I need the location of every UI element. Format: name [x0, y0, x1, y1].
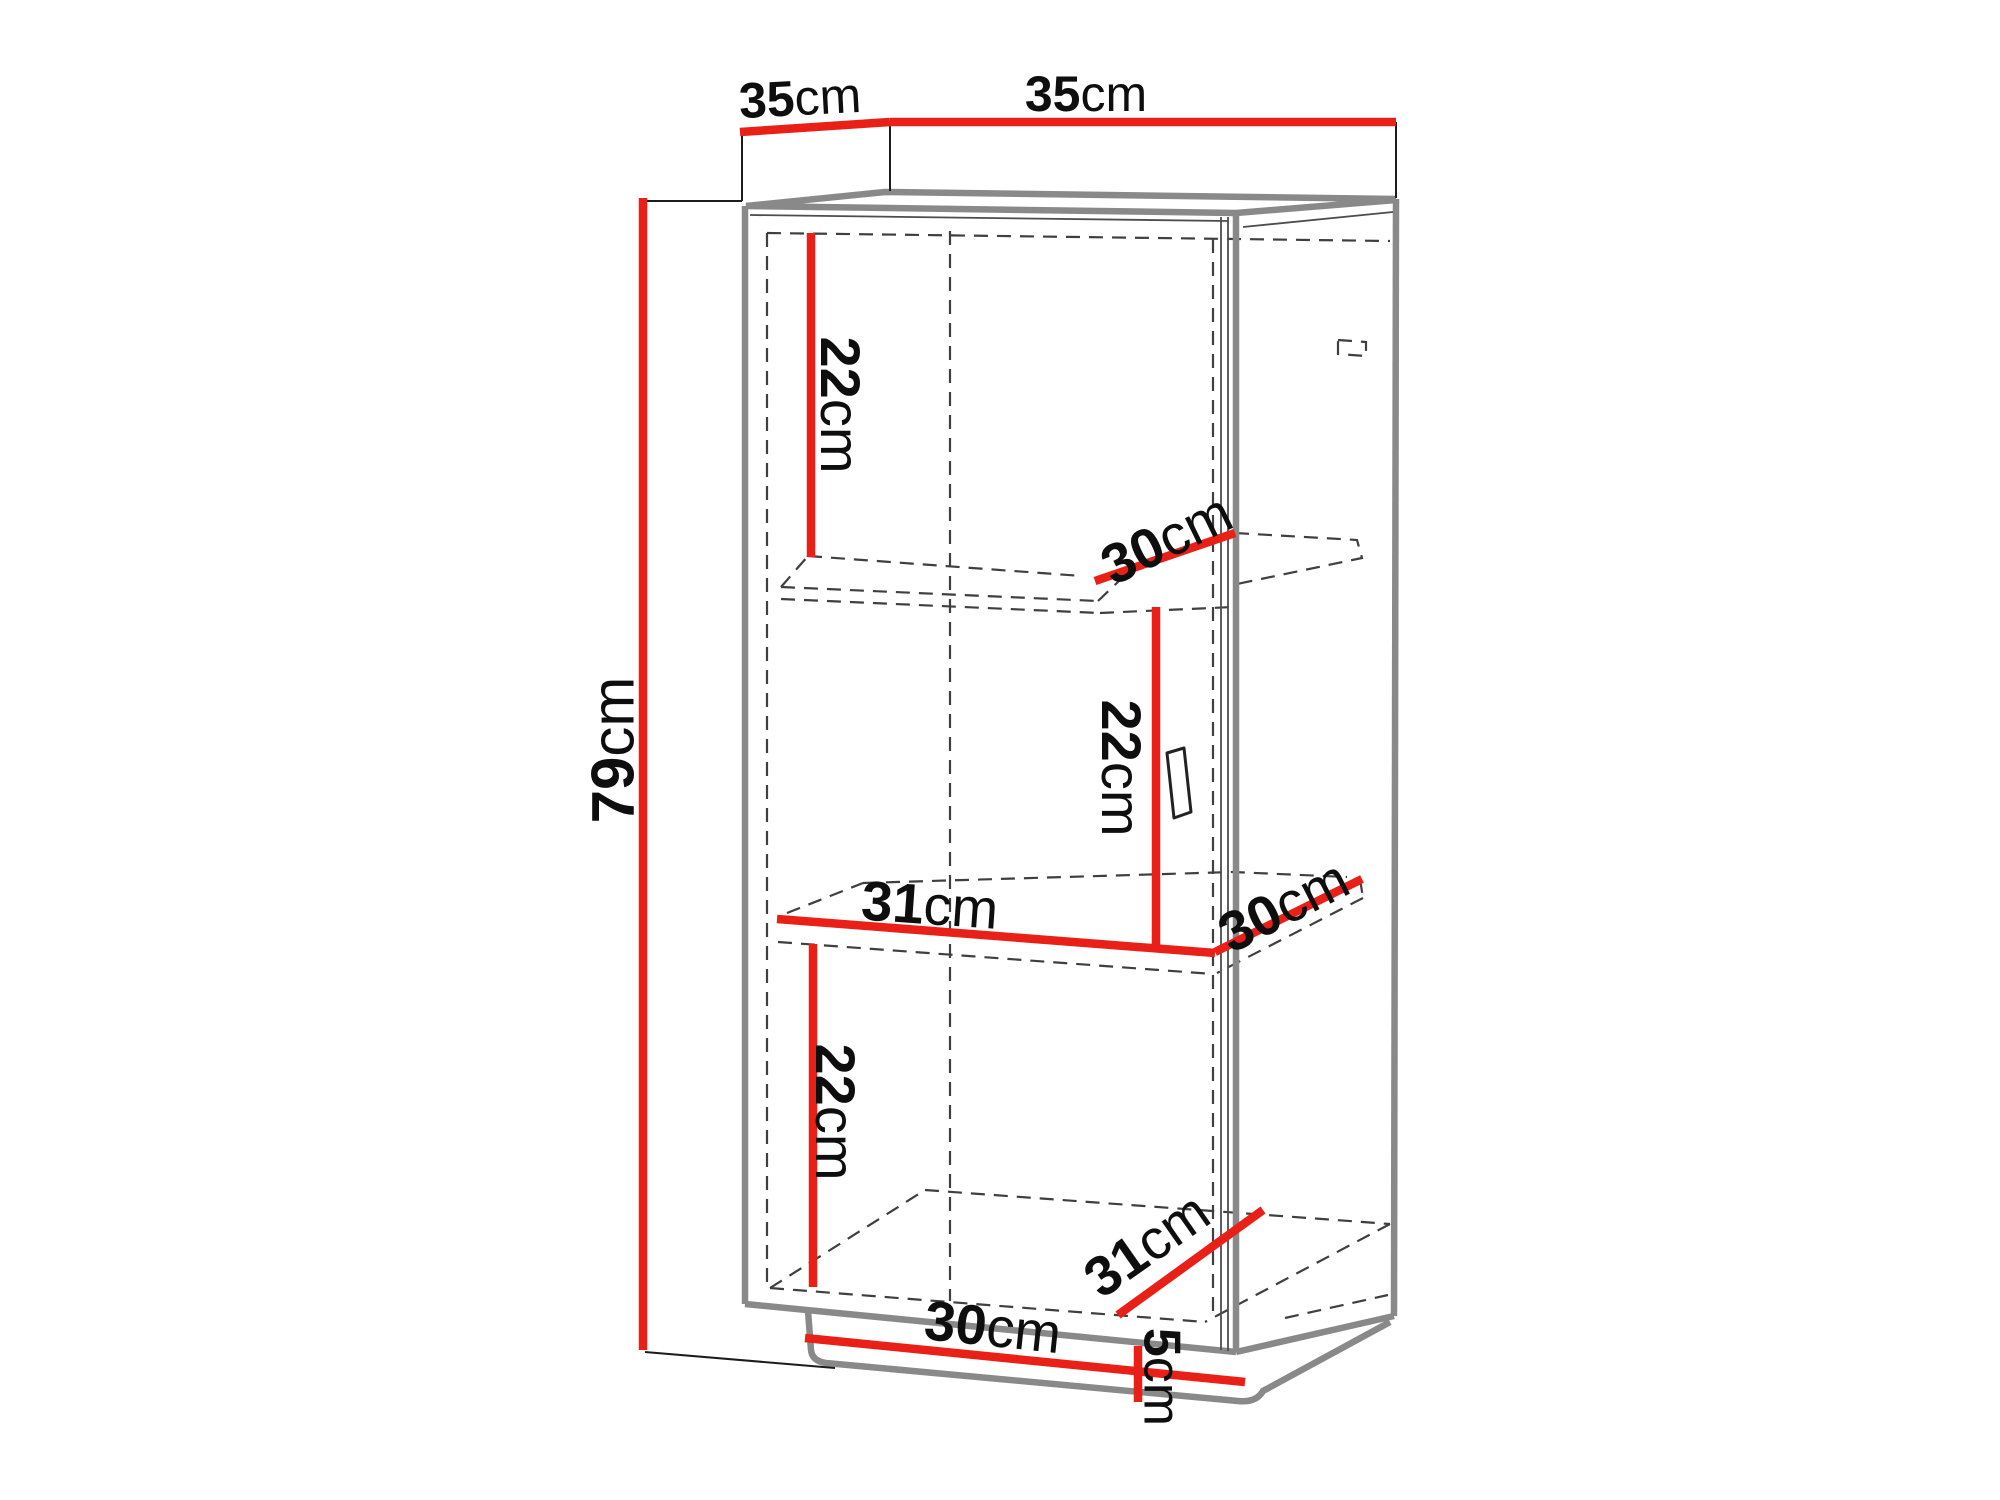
label-22cm-top-number: 22: [809, 337, 872, 399]
floor-left-edge: [770, 1190, 925, 1288]
label-35cm-width-unit: cm: [1080, 66, 1147, 122]
label-35cm-width-number: 35: [1025, 66, 1081, 122]
shelf2-left-edge: [787, 883, 863, 913]
shelf1-left-edge: [781, 556, 808, 587]
label-79cm-height-number: 79: [580, 757, 647, 824]
shelf1-back-edge: [808, 556, 1082, 576]
label-22cm-bottom: 22cm: [804, 1044, 867, 1181]
label-79cm-height: 79cm: [580, 677, 647, 824]
cabinet-dimension-diagram: 35cm35cm79cm22cm30cm22cm31cm30cm22cm30cm…: [0, 0, 2000, 1500]
label-5cm-plinth-number: 5: [1132, 1328, 1190, 1357]
label-79cm-height-unit: cm: [580, 677, 647, 757]
label-22cm-top: 22cm: [809, 337, 872, 474]
interior-top-edge: [767, 233, 1390, 241]
label-31cm-shelf2: 31cm: [859, 868, 1000, 940]
label-22cm-bottom-number: 22: [804, 1044, 867, 1106]
shelf1-front-top-edge: [781, 587, 1098, 601]
label-22cm-bottom-unit: cm: [804, 1106, 867, 1181]
label-35cm-depth: 35cm: [738, 67, 863, 129]
label-22cm-middle-number: 22: [1090, 700, 1153, 762]
corner-detail: [1338, 340, 1366, 356]
door-handle: [1167, 748, 1191, 818]
label-22cm-top-unit: cm: [809, 399, 872, 474]
label-31cm-shelf2-number: 31: [859, 868, 926, 935]
plinth-outline: [808, 1311, 1390, 1401]
label-22cm-middle-unit: cm: [1090, 762, 1153, 837]
label-35cm-depth-unit: cm: [793, 67, 862, 126]
door-handle-group: [1167, 748, 1191, 818]
label-5cm-plinth: 5cm: [1132, 1328, 1190, 1426]
shelf1-right-part: [1235, 533, 1362, 584]
top-front-edge: [746, 200, 1396, 213]
ext-79-bottom: [645, 1352, 835, 1368]
label-22cm-middle: 22cm: [1090, 700, 1153, 837]
side-top-line: [1243, 212, 1393, 227]
shelf1-front-bottom: [781, 599, 1100, 613]
top-rail-line: [750, 215, 1228, 221]
extension-lines: [643, 122, 1396, 1368]
diagram-stage: 35cm35cm79cm22cm30cm22cm31cm30cm22cm30cm…: [0, 0, 2000, 1500]
label-31cm-shelf2-unit: cm: [922, 873, 1001, 941]
top-back-edge: [746, 192, 1396, 206]
label-5cm-plinth-unit: cm: [1132, 1357, 1190, 1426]
label-35cm-depth-number: 35: [738, 70, 796, 129]
label-30cm-shelf1: 30cm: [1091, 480, 1242, 597]
label-30cm-shelf2: 30cm: [1208, 846, 1359, 964]
back-right-edge: [1394, 199, 1396, 1316]
label-30cm-bottom-unit: cm: [983, 1295, 1064, 1365]
plinth-back-detail: [1285, 1295, 1388, 1318]
label-30cm-bottom-number: 30: [922, 1288, 991, 1357]
label-35cm-width: 35cm: [1025, 66, 1147, 122]
dimension-lines: [643, 122, 1396, 1402]
